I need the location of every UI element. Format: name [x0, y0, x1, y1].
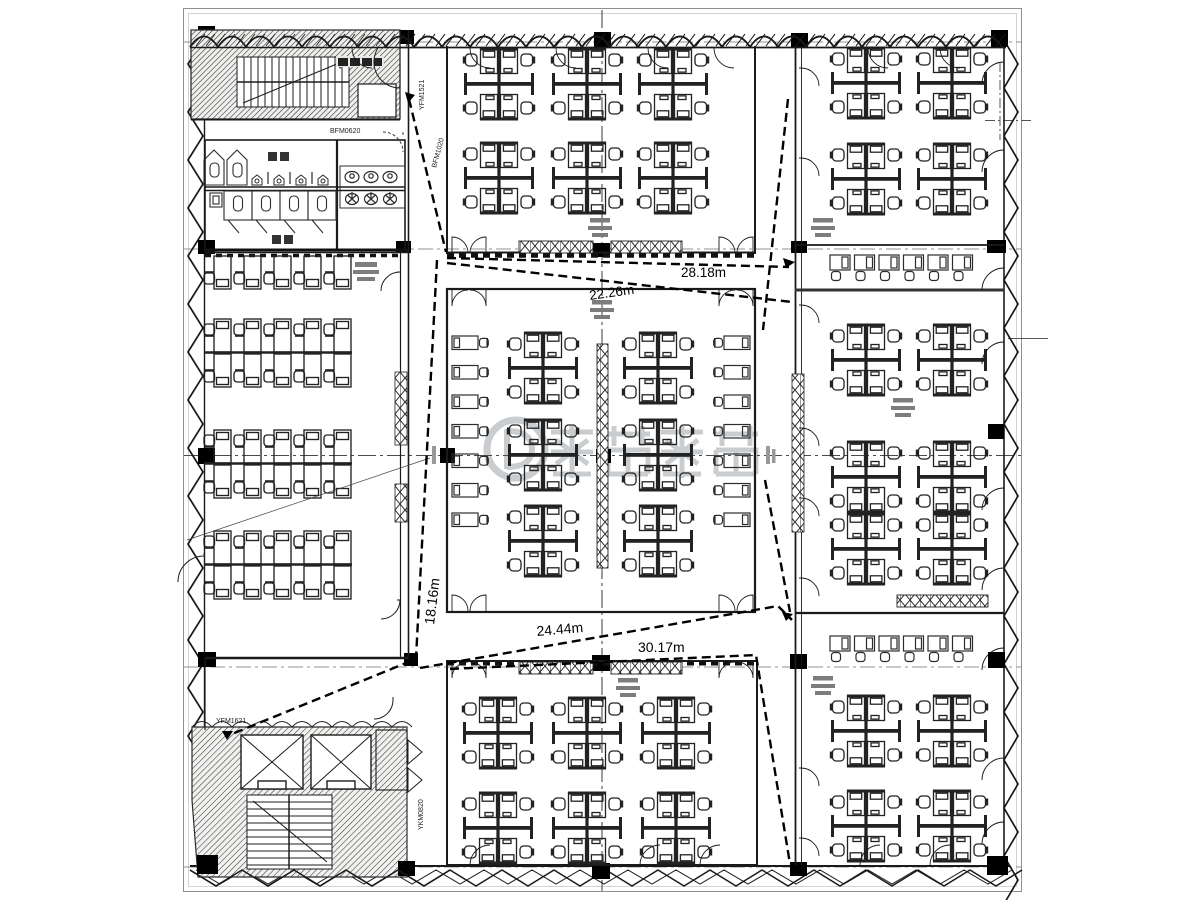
svg-text:BFM1020: BFM1020: [431, 137, 446, 168]
svg-text:18.16m: 18.16m: [421, 577, 443, 625]
svg-text:YFM1521: YFM1521: [419, 80, 426, 110]
svg-text:22.26m: 22.26m: [588, 282, 635, 303]
svg-text:24.44m: 24.44m: [536, 619, 584, 639]
svg-text:BFM0620: BFM0620: [330, 128, 360, 135]
svg-text:28.18m: 28.18m: [681, 265, 726, 280]
svg-text:YFM1621: YFM1621: [216, 718, 246, 725]
svg-text:30.17m: 30.17m: [638, 639, 685, 655]
svg-text:YKM0820: YKM0820: [418, 799, 425, 830]
